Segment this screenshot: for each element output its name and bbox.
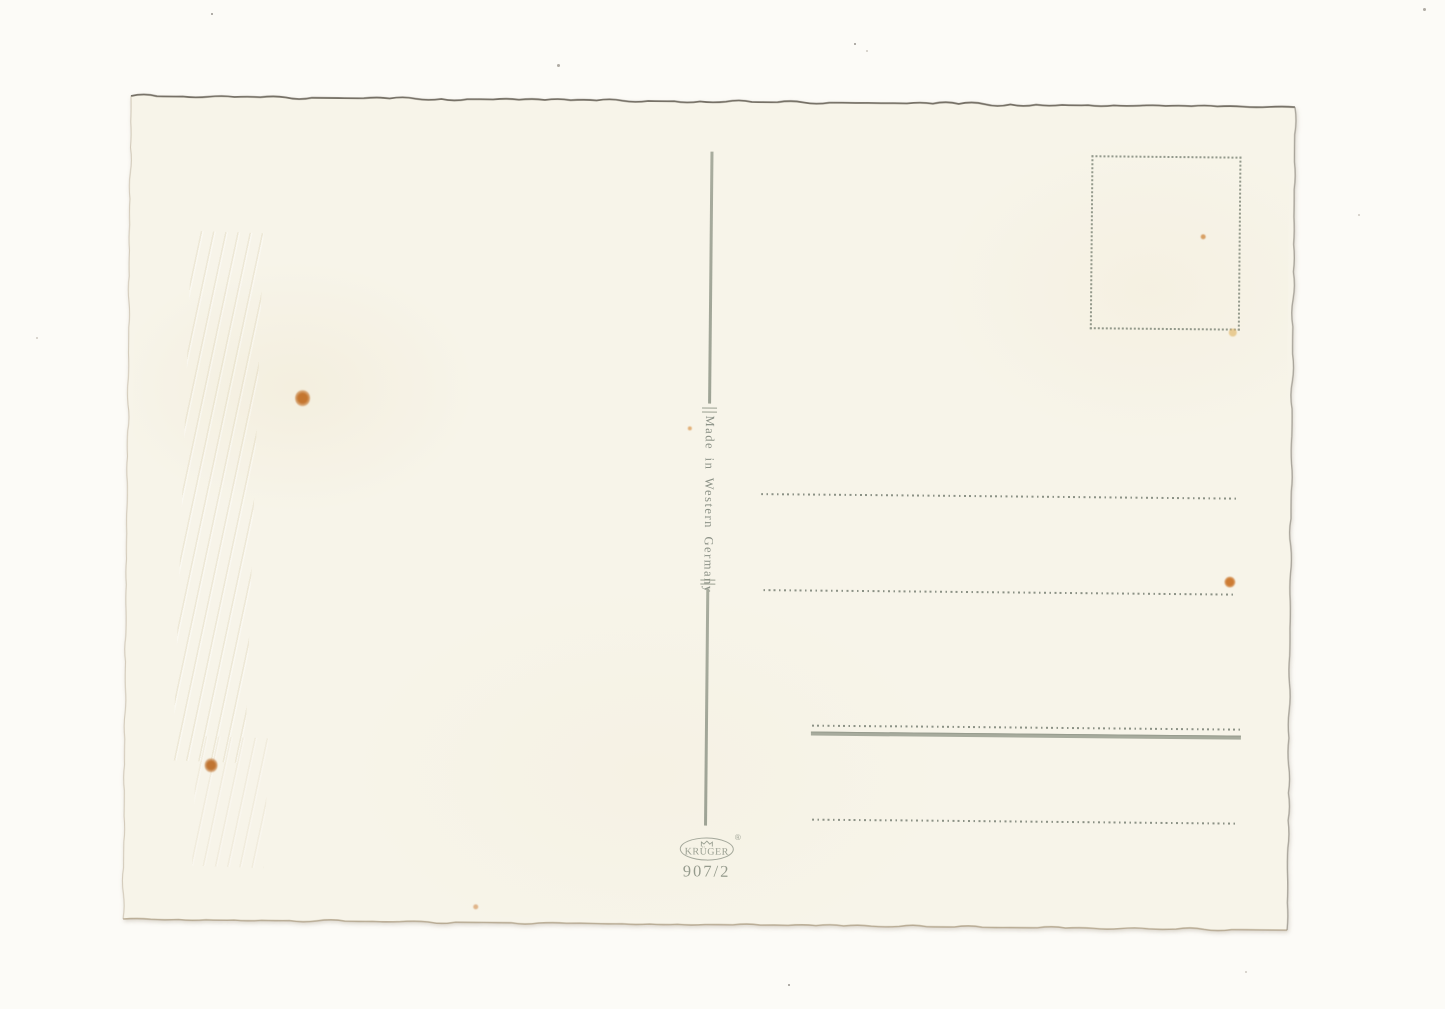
- postcard: Made in Western Germany KRÜGER ® 907/2: [123, 96, 1295, 930]
- origin-imprint: Made in Western Germany: [700, 415, 717, 577]
- series-number: 907/2: [671, 861, 741, 882]
- foxing-spot: [205, 758, 218, 773]
- dust-speck: [1245, 971, 1247, 973]
- dust-speck: [1423, 8, 1426, 11]
- postcard-scan: Made in Western Germany KRÜGER ® 907/2: [0, 0, 1445, 1009]
- foxing-spot: [1229, 329, 1237, 337]
- dust-speck: [854, 43, 856, 45]
- crown-icon: [700, 840, 713, 846]
- dust-speck: [557, 64, 560, 67]
- publisher-logo-oval: KRÜGER: [680, 837, 734, 861]
- stamp-box: [1090, 155, 1242, 330]
- dust-speck: [788, 984, 790, 986]
- foxing-spot: [473, 904, 478, 909]
- foxing-spot: [1201, 234, 1206, 239]
- dust-speck: [866, 50, 868, 52]
- handwriting-impressions: [192, 736, 269, 868]
- divider-end-tick: [702, 407, 717, 412]
- dust-speck: [1358, 214, 1360, 216]
- foxing-spot: [295, 390, 310, 407]
- publisher-name: KRÜGER: [681, 847, 733, 857]
- dust-speck: [211, 13, 213, 15]
- divider-end-tick: [700, 579, 715, 584]
- foxing-spot: [688, 426, 692, 430]
- foxing-spot: [1224, 577, 1235, 588]
- registered-trademark-symbol: ®: [735, 833, 741, 842]
- dust-speck: [36, 337, 38, 339]
